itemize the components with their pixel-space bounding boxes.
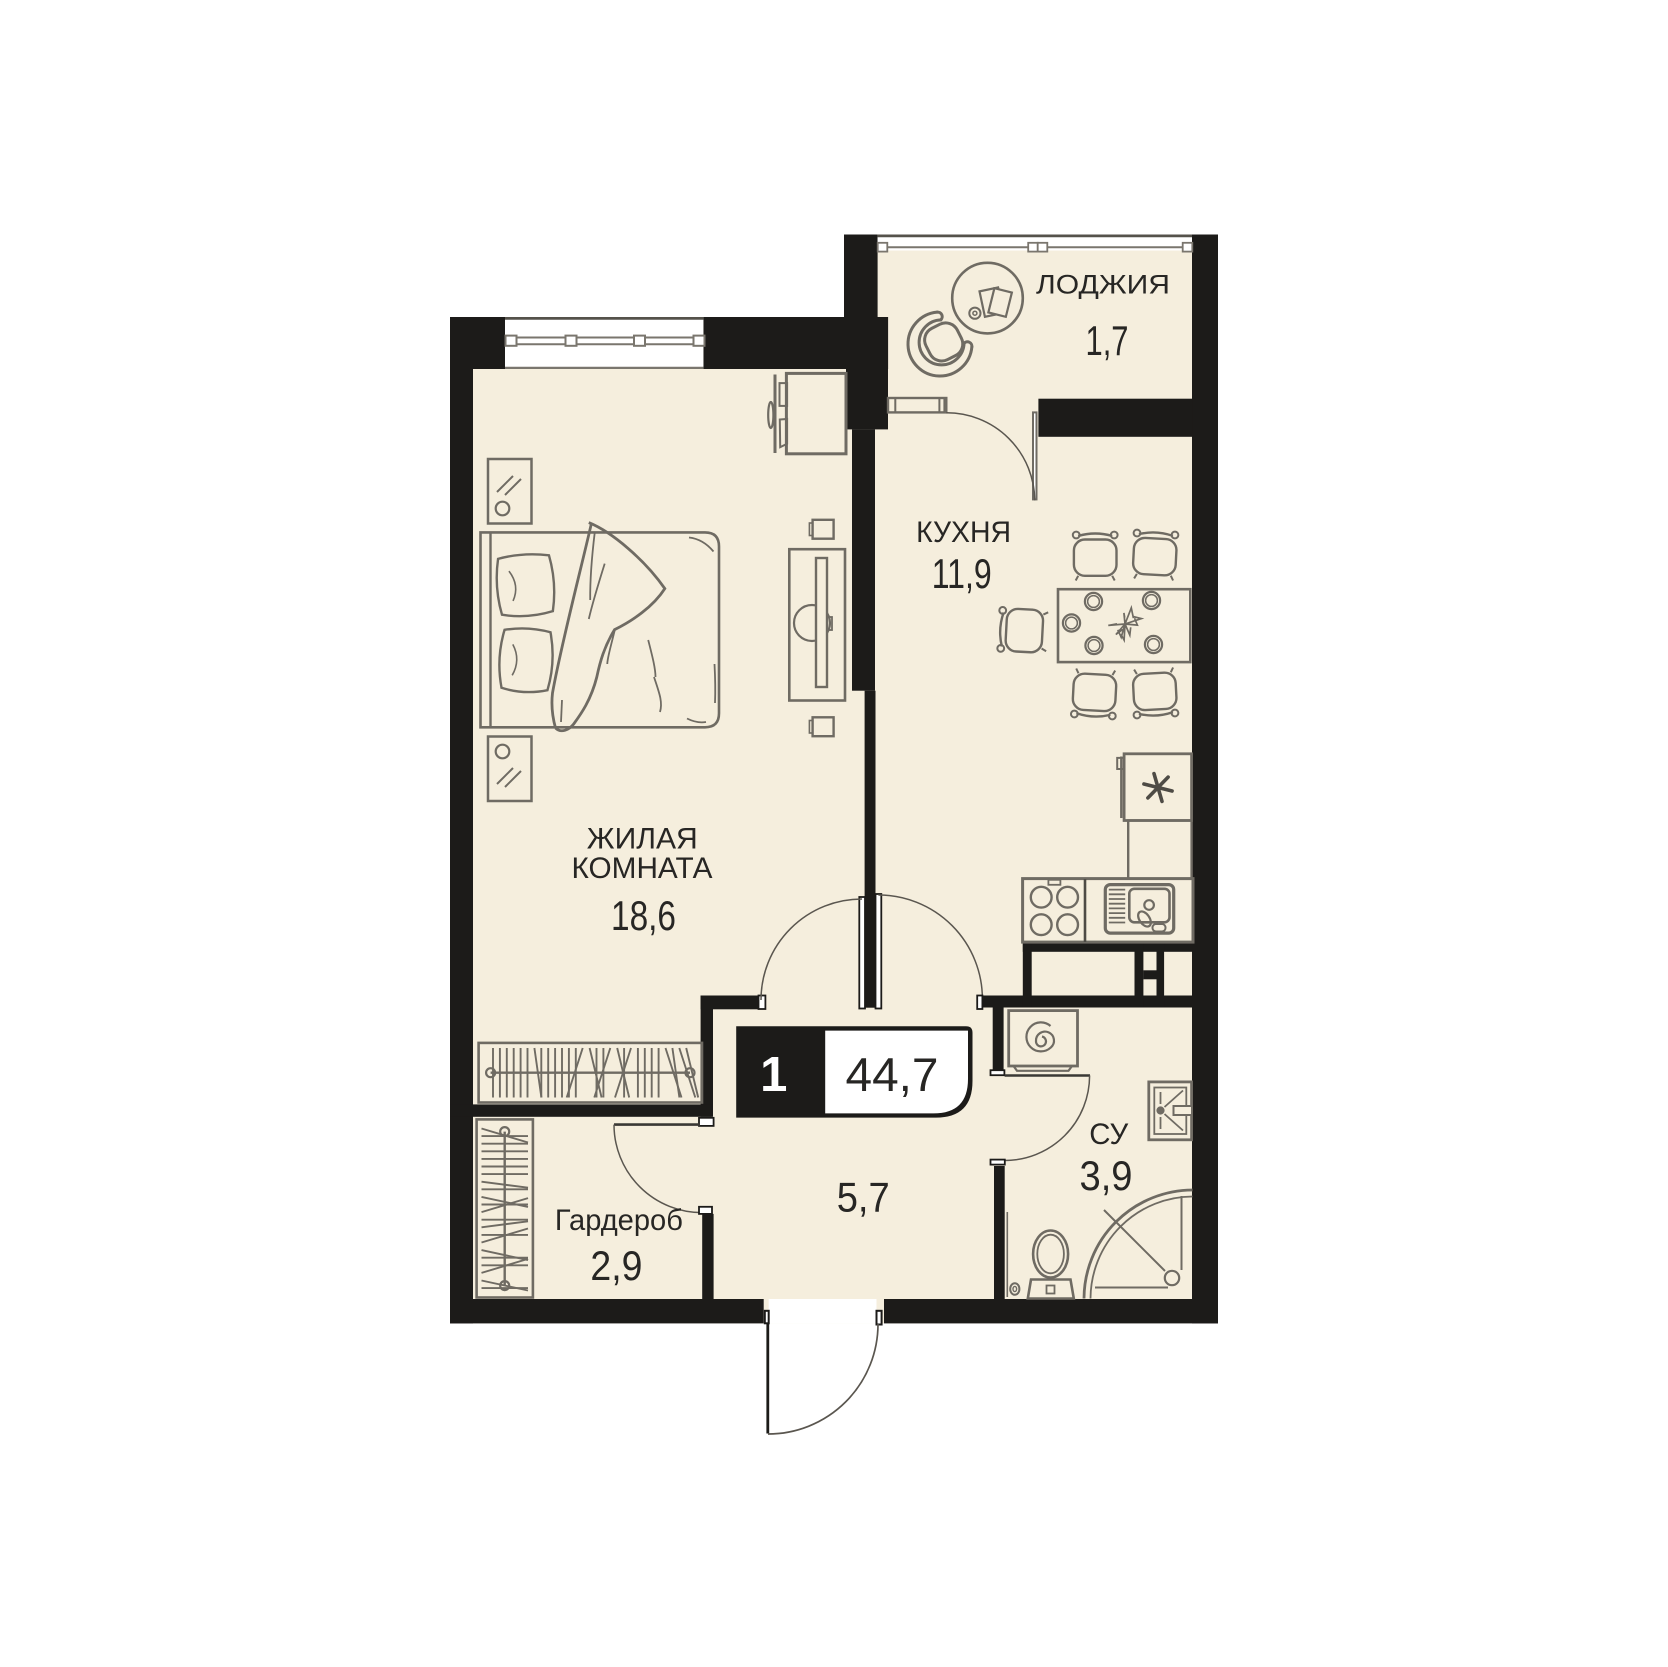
svg-text:КУХНЯ: КУХНЯ [916,516,1011,549]
svg-text:18,6: 18,6 [611,892,676,939]
svg-text:2,9: 2,9 [590,1242,642,1289]
svg-text:11,9: 11,9 [932,550,992,597]
svg-text:СУ: СУ [1089,1118,1128,1151]
svg-text:1: 1 [760,1048,787,1102]
svg-text:3,9: 3,9 [1080,1152,1133,1199]
svg-text:5,7: 5,7 [837,1174,890,1221]
svg-text:1,7: 1,7 [1086,317,1129,364]
svg-text:ЛОДЖИЯ: ЛОДЖИЯ [1036,270,1170,300]
svg-text:44,7: 44,7 [846,1049,939,1102]
svg-text:ЖИЛАЯ: ЖИЛАЯ [587,823,698,856]
svg-text:КОМНАТА: КОМНАТА [572,852,713,885]
svg-text:Гардероб: Гардероб [555,1204,683,1237]
